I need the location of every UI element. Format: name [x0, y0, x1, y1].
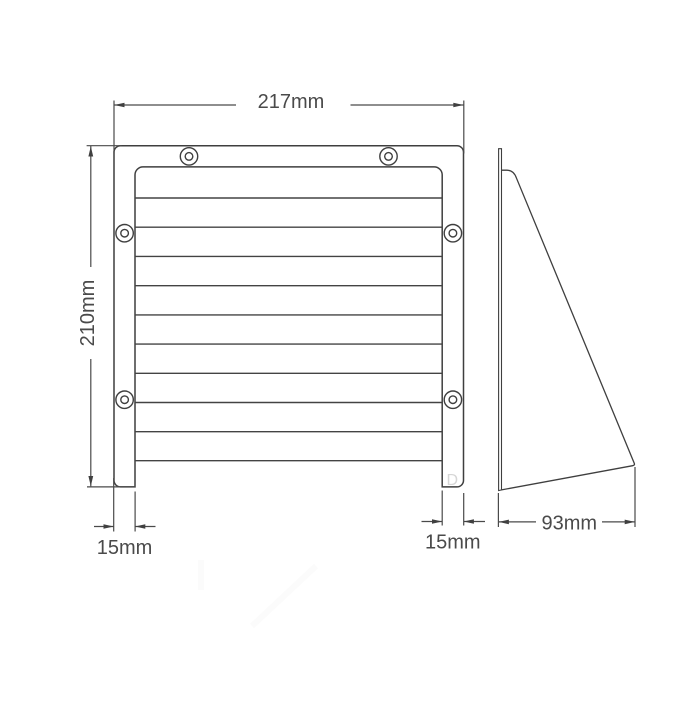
- svg-text:217mm: 217mm: [258, 91, 325, 113]
- svg-text:15mm: 15mm: [425, 532, 481, 554]
- svg-text:93mm: 93mm: [542, 513, 598, 535]
- svg-text:210mm: 210mm: [77, 280, 99, 347]
- svg-text:15mm: 15mm: [97, 537, 153, 559]
